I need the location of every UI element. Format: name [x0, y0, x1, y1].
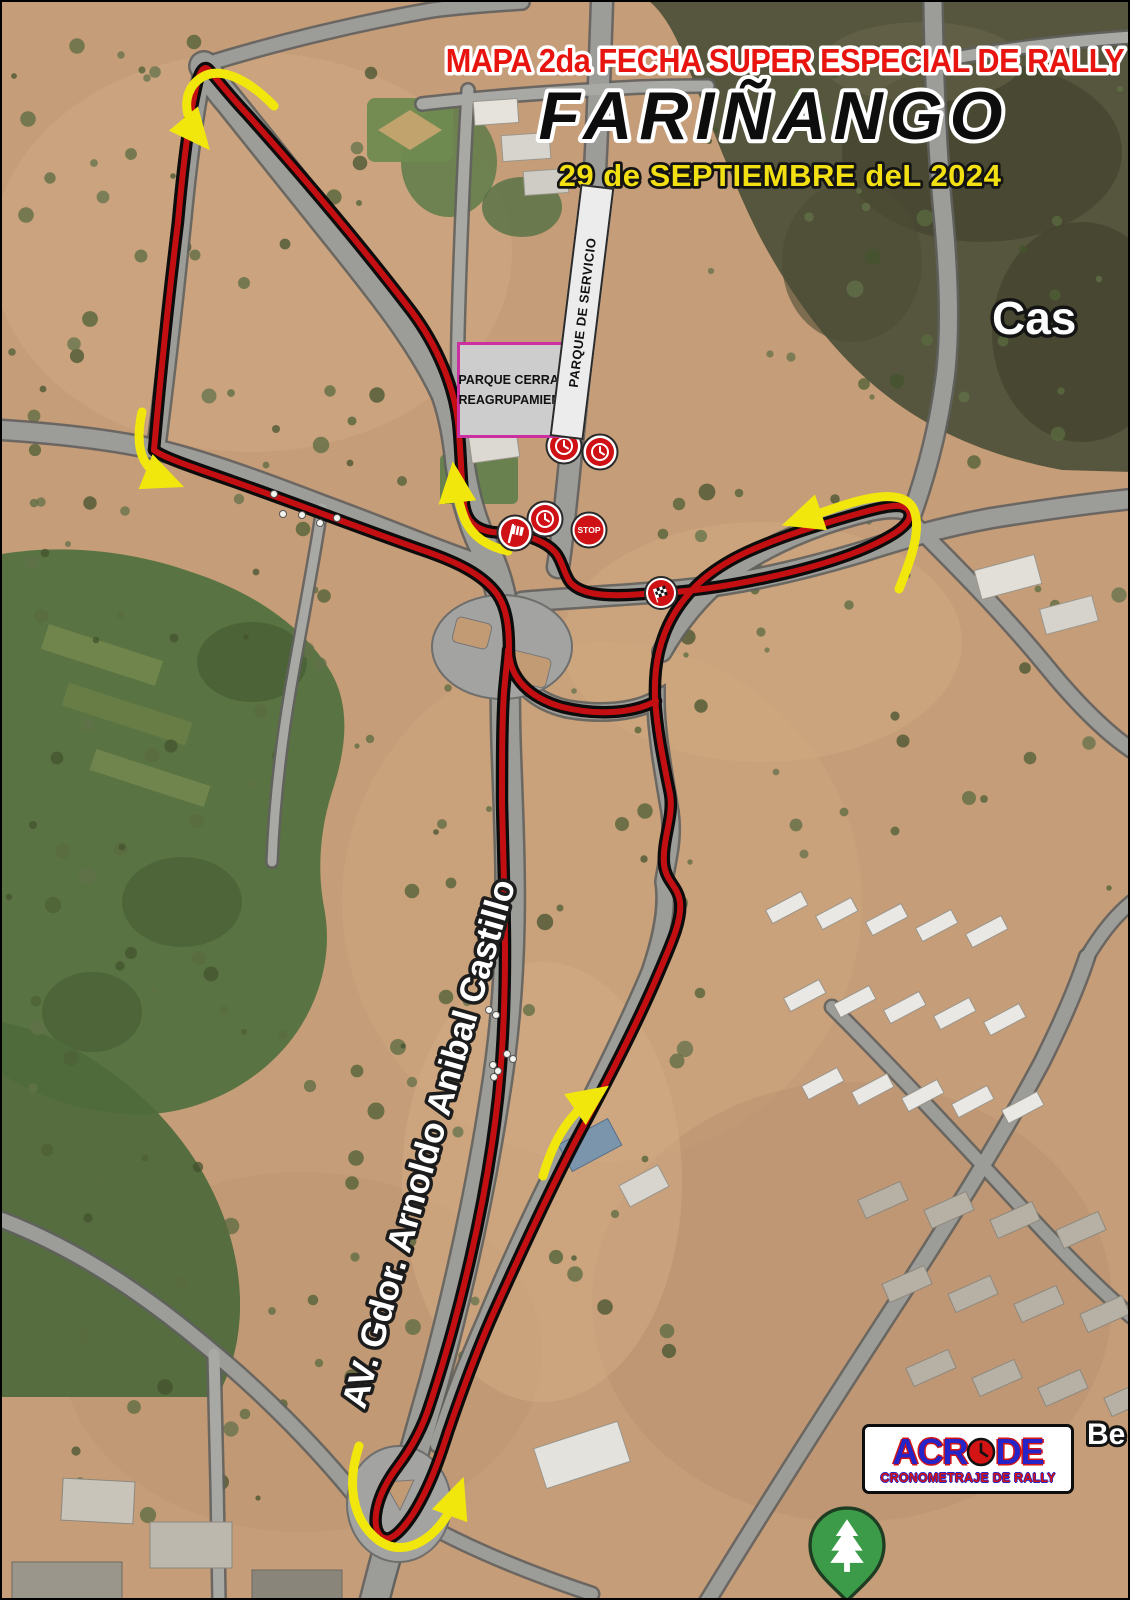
stop-label: STOP: [578, 525, 601, 535]
poster-title-line3: 29 de SEPTIEMBRE deL 2024: [559, 158, 1002, 193]
rally-map-poster: STOP MAPA 2da FECHA SUPER ESPECIAL DE RA…: [0, 0, 1130, 1600]
place-label-cas: Cas: [992, 292, 1076, 344]
acrode-logo: ACR DE CRONOMETRAJE DE RALLY: [862, 1424, 1074, 1494]
start-flag-icon: [498, 516, 533, 551]
park-pin-icon: [810, 1508, 884, 1600]
logo-text-de: DE: [995, 1434, 1043, 1470]
satellite-map: STOP MAPA 2da FECHA SUPER ESPECIAL DE RA…: [2, 2, 1130, 1600]
logo-text-acr: ACR: [892, 1434, 967, 1470]
poster-title-line2: FARIÑANGO: [539, 78, 1010, 154]
control-markers: STOP: [498, 429, 678, 610]
logo-tagline: CRONOMETRAJE DE RALLY: [880, 1471, 1055, 1485]
place-label-be: Be: [1087, 1418, 1125, 1451]
stop-control-marker: STOP: [572, 513, 607, 548]
poster-title-line1: MAPA 2da FECHA SUPER ESPECIAL DE RALLY: [446, 42, 1125, 79]
clock-icon: [966, 1437, 996, 1467]
time-control-icon: [583, 435, 618, 470]
finish-checkered-flag-icon: [645, 577, 677, 609]
